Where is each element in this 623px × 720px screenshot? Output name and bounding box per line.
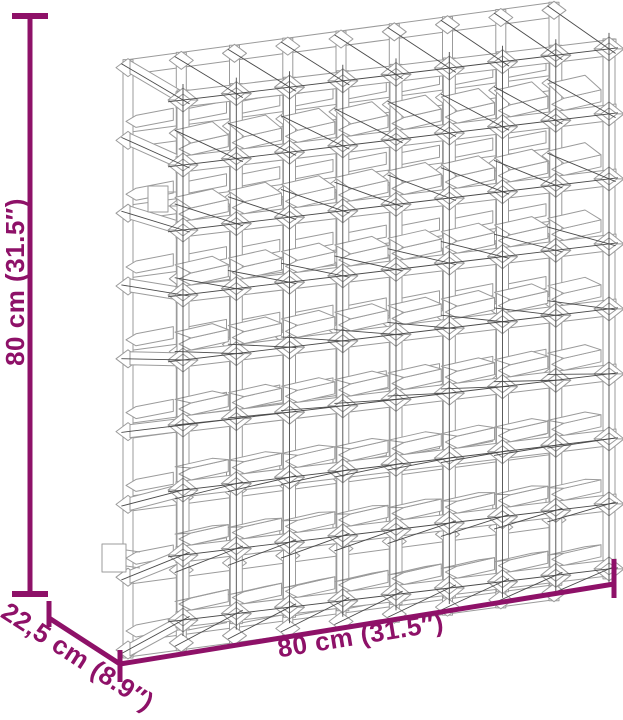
page: { "page": { "background": "#ffffff" }, "… [0,0,623,720]
height-dimension-label: 80 cm (31.5″) [0,198,30,366]
wine-rack-wireframe [102,1,623,659]
height-dimension: 80 cm (31.5″) [0,16,48,594]
wine-rack-dimension-figure: 80 cm (31.5″) 22,5 cm (8.9″) 80 cm (31.5… [0,0,623,720]
dimension-diagram-stage: 80 cm (31.5″) 22,5 cm (8.9″) 80 cm (31.5… [0,0,623,720]
wall-bracket-bottom [102,544,126,572]
wall-brackets [102,186,182,572]
wall-bracket-top [148,186,168,212]
